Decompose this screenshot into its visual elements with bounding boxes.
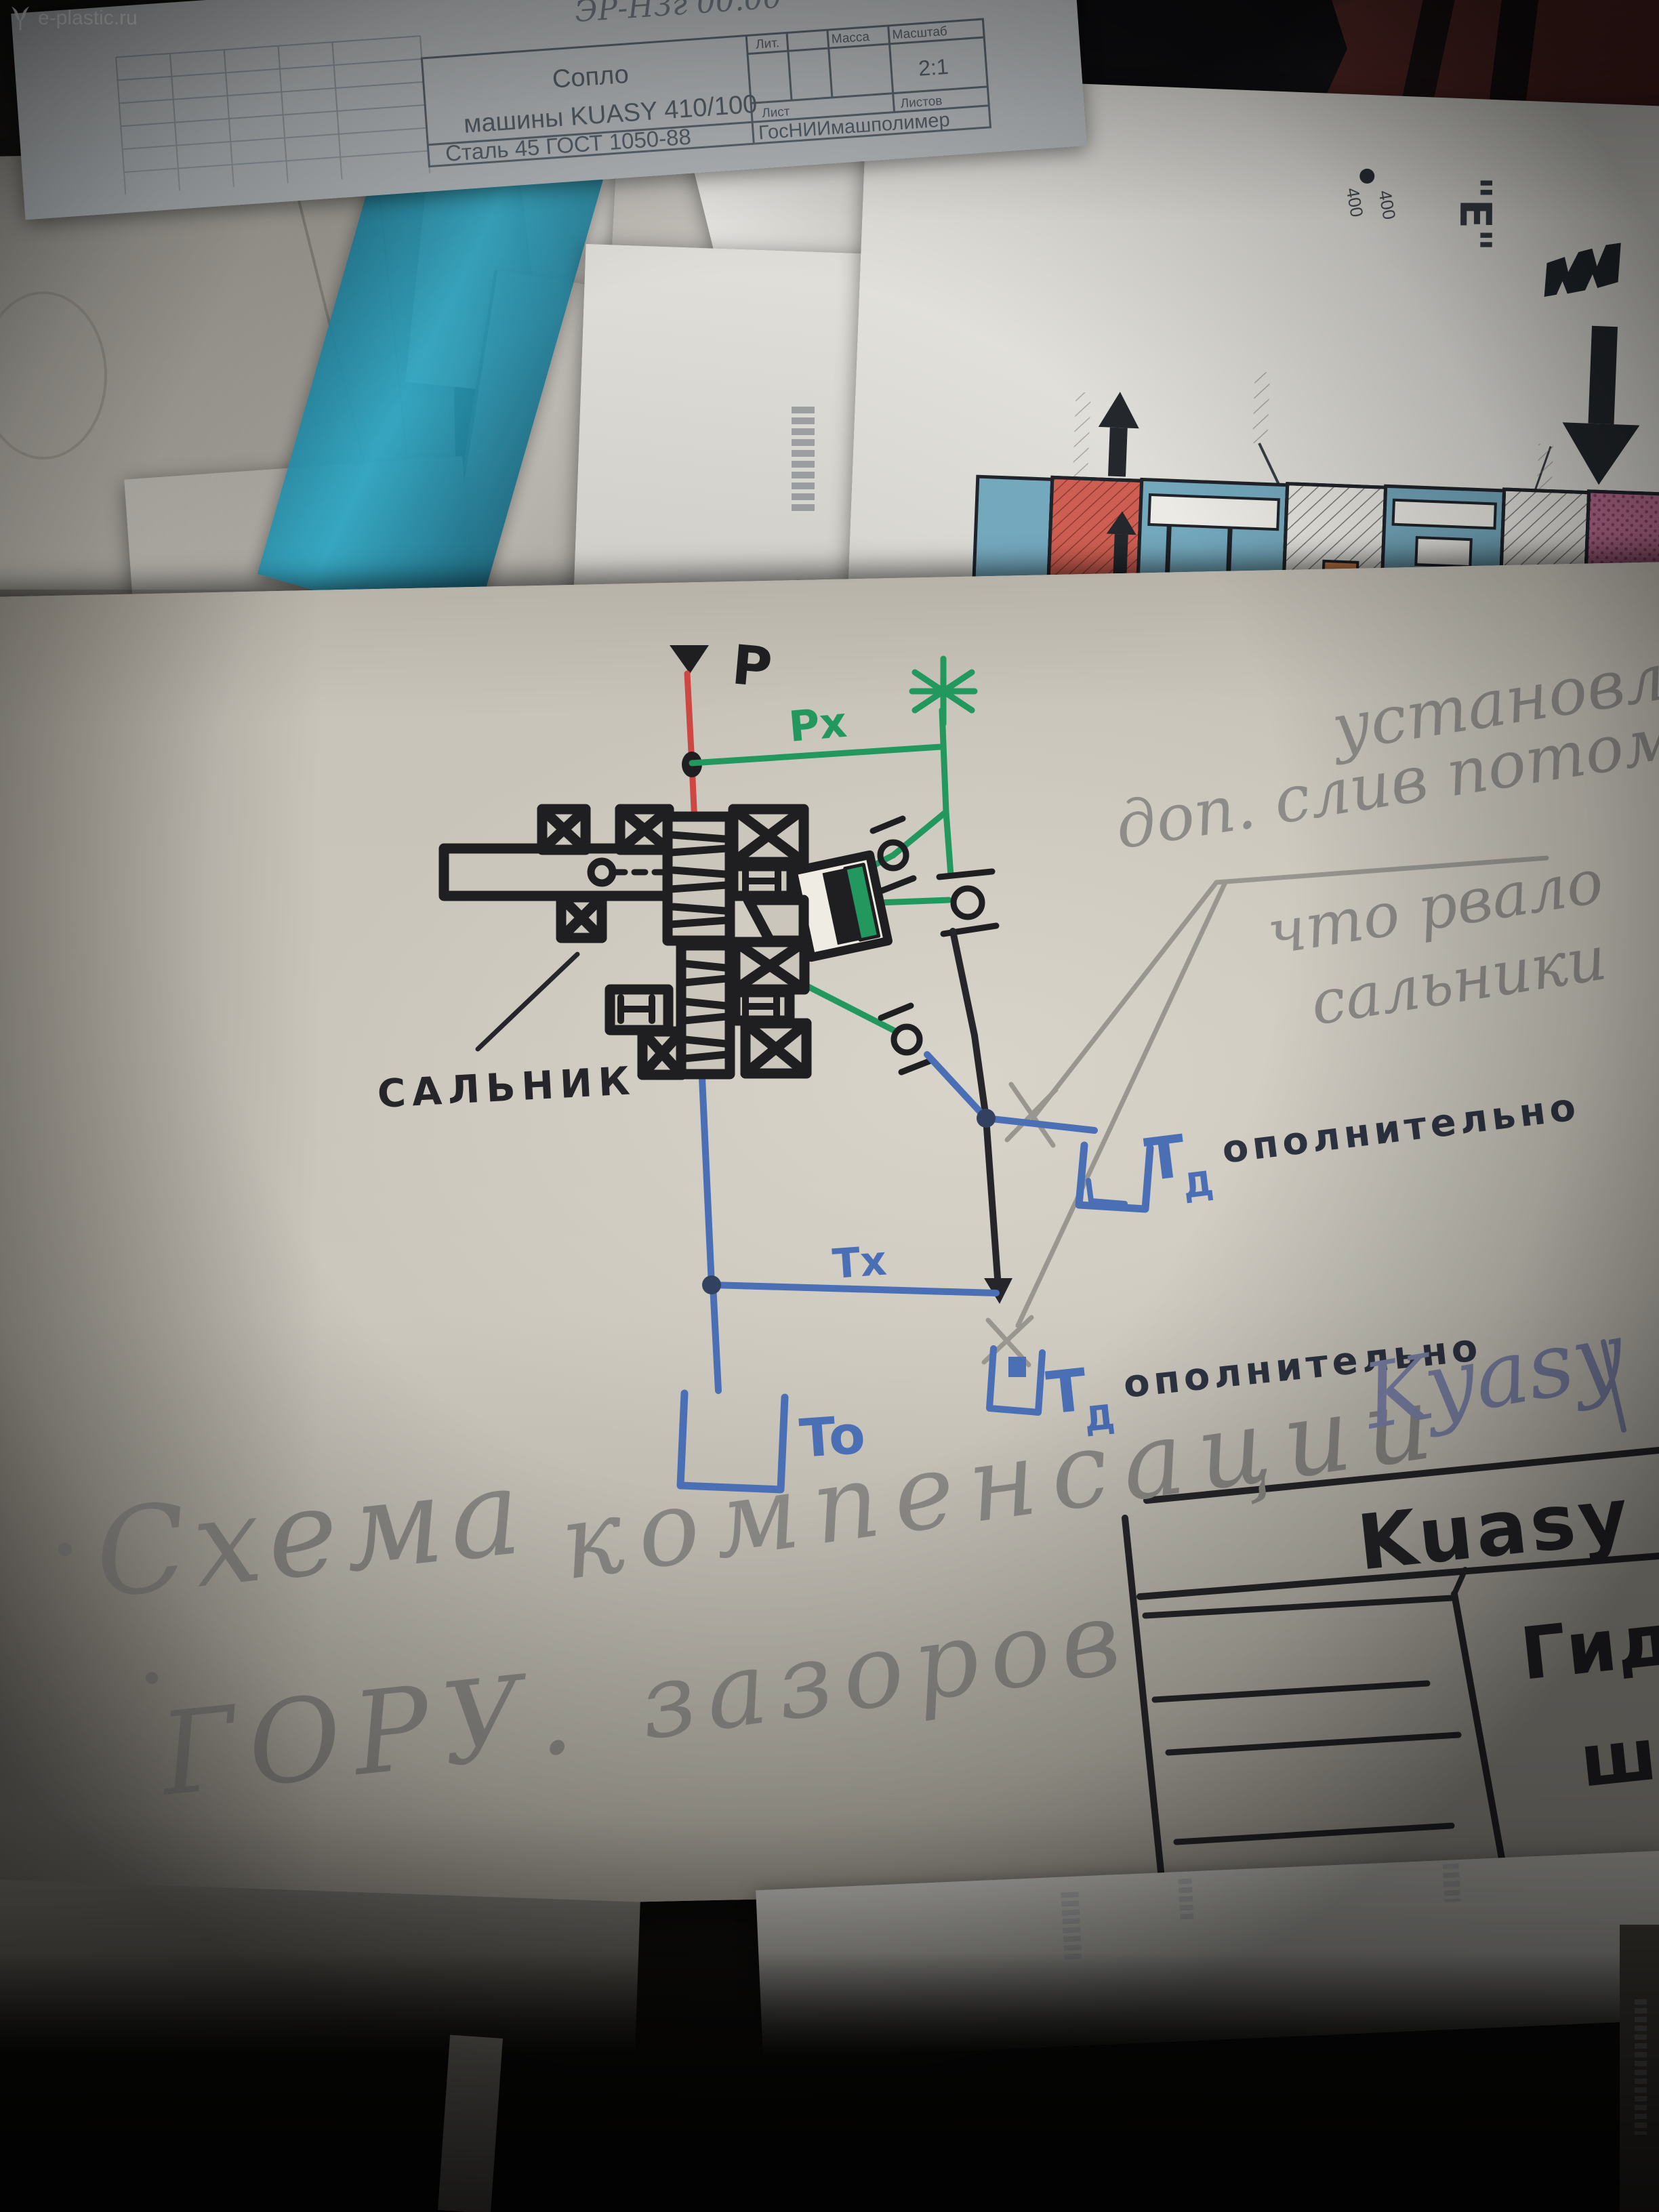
label-p: P [729,633,775,699]
titleblock-doctype2: ш [1576,1713,1659,1803]
bullet-dot [58,1542,72,1556]
titleblock-doctype: Гидро [1517,1586,1659,1696]
check-valve-icon [881,1006,933,1072]
label-tx: Tx [831,1237,888,1288]
label-salnik: САЛЬНИК [376,1059,637,1117]
junction-dot [702,1275,721,1294]
vertical-text-marks [1443,1863,1461,1902]
watermark-text: e-plastic.ru [38,7,138,30]
desk-photo: "E" 400 400 [0,0,1659,2212]
watermark: e-plastic.ru [8,5,138,31]
vertical-text-marks [1061,1891,1082,1960]
caption-word2: компенсации [553,1360,1453,1603]
p-line-red [687,674,692,764]
valve-assembly-upper [444,809,804,941]
caption-word4: зазоров [632,1578,1138,1763]
vertical-text-marks [1635,1999,1647,2135]
tank-lines-blue [702,1054,1094,1391]
label-px: Px [787,697,848,752]
caption-word1: Схема [89,1441,534,1625]
label-t-dop-1: Т Д ополнительно [1141,1085,1582,1206]
caption-word3: ГОРУ. [152,1645,591,1822]
bullet-dot [146,1672,158,1684]
tank-symbol-dot [1008,1357,1026,1377]
px-asterisk-icon [912,659,975,724]
salnik-leader-line [478,954,577,1049]
svg-text:ополнительно: ополнительно [1220,1085,1582,1172]
tank-symbol-inner [1088,1181,1125,1204]
p-port-triangle-icon [670,645,709,674]
watermark-logo-icon [8,5,33,31]
svg-text:Д: Д [1181,1164,1215,1206]
valve-assembly-lower [610,942,806,1075]
desk-dark-band [0,1952,1659,2212]
vertical-text-marks [1178,1879,1193,1921]
signature-kyasy: Kyasy [1355,1302,1633,1450]
junction-dot [977,1109,996,1128]
